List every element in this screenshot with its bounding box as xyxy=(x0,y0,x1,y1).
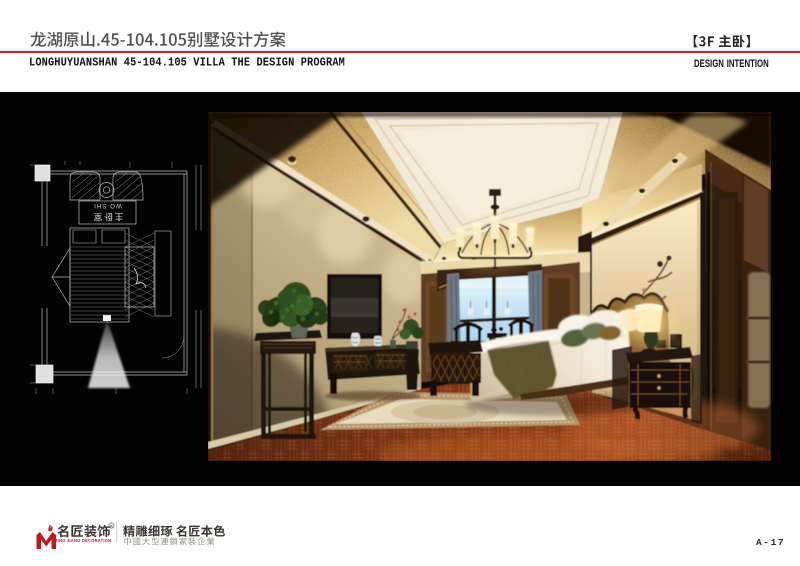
svg-text:WO SHI: WO SHI xyxy=(93,202,122,209)
svg-text:R: R xyxy=(110,523,113,528)
svg-text:MING JIANG DECORATION: MING JIANG DECORATION xyxy=(54,538,111,543)
